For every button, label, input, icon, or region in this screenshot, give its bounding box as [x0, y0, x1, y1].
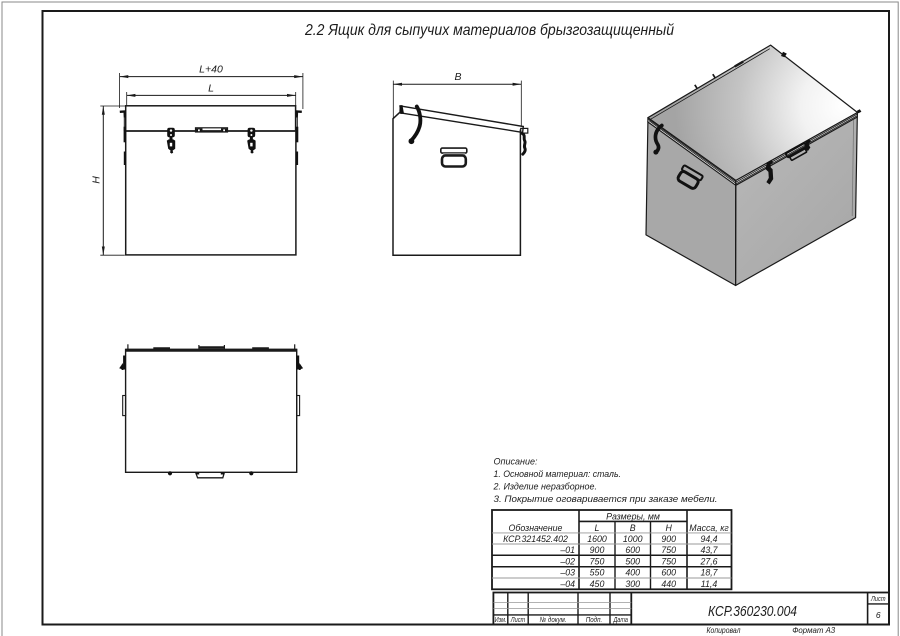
- svg-text:H: H: [666, 523, 673, 533]
- svg-text:Описание:: Описание:: [494, 457, 538, 468]
- svg-text:–03: –03: [559, 568, 575, 578]
- svg-text:–02: –02: [559, 556, 575, 566]
- svg-text:Формат А3: Формат А3: [792, 626, 836, 635]
- svg-text:2.2 Ящик для сыпучих материало: 2.2 Ящик для сыпучих материалов брызгоза…: [304, 22, 674, 39]
- svg-text:–04: –04: [559, 579, 575, 589]
- svg-text:440: 440: [661, 579, 676, 589]
- svg-text:400: 400: [625, 568, 640, 578]
- svg-text:КСР.360230.004: КСР.360230.004: [708, 604, 797, 620]
- svg-text:Размеры, мм: Размеры, мм: [606, 512, 660, 522]
- svg-text:Масса, кг: Масса, кг: [689, 523, 729, 533]
- svg-text:1600: 1600: [587, 534, 607, 544]
- svg-text:900: 900: [661, 534, 676, 544]
- svg-text:Изм.: Изм.: [495, 615, 507, 624]
- svg-text:1. Основной материал: сталь.: 1. Основной материал: сталь.: [494, 469, 622, 480]
- svg-text:L+40: L+40: [199, 64, 223, 76]
- svg-text:H: H: [91, 176, 103, 184]
- svg-text:Копировал: Копировал: [707, 626, 741, 635]
- svg-text:450: 450: [590, 579, 605, 589]
- svg-text:18,7: 18,7: [700, 568, 718, 578]
- svg-text:750: 750: [661, 545, 676, 555]
- svg-text:600: 600: [661, 568, 676, 578]
- svg-text:–01: –01: [559, 545, 575, 555]
- svg-text:300: 300: [625, 579, 640, 589]
- svg-text:11,4: 11,4: [701, 579, 718, 589]
- svg-text:550: 550: [590, 568, 605, 578]
- svg-text:43,7: 43,7: [700, 545, 718, 555]
- svg-text:№ докум.: № докум.: [540, 615, 567, 624]
- svg-text:94,4: 94,4: [700, 534, 717, 544]
- svg-text:750: 750: [590, 556, 605, 566]
- svg-text:6: 6: [876, 610, 881, 620]
- svg-text:2. Изделие неразборное.: 2. Изделие неразборное.: [493, 481, 597, 492]
- svg-text:B: B: [454, 71, 461, 83]
- svg-text:B: B: [630, 523, 636, 533]
- svg-text:27,6: 27,6: [699, 556, 717, 566]
- svg-text:600: 600: [625, 545, 640, 555]
- svg-text:Дата: Дата: [613, 615, 628, 624]
- svg-text:L: L: [208, 83, 214, 95]
- svg-text:Лист: Лист: [870, 596, 885, 603]
- svg-text:900: 900: [590, 545, 605, 555]
- svg-text:1000: 1000: [623, 534, 643, 544]
- svg-text:КСР.321452.402: КСР.321452.402: [503, 534, 568, 544]
- svg-text:Лист: Лист: [510, 615, 525, 624]
- svg-text:L: L: [595, 523, 600, 533]
- svg-text:500: 500: [625, 556, 640, 566]
- svg-text:750: 750: [661, 556, 676, 566]
- svg-text:Обозначение: Обозначение: [509, 523, 563, 533]
- svg-text:3. Покрытие оговаривается при: 3. Покрытие оговаривается при заказе меб…: [494, 494, 718, 505]
- svg-text:Подп.: Подп.: [586, 615, 603, 624]
